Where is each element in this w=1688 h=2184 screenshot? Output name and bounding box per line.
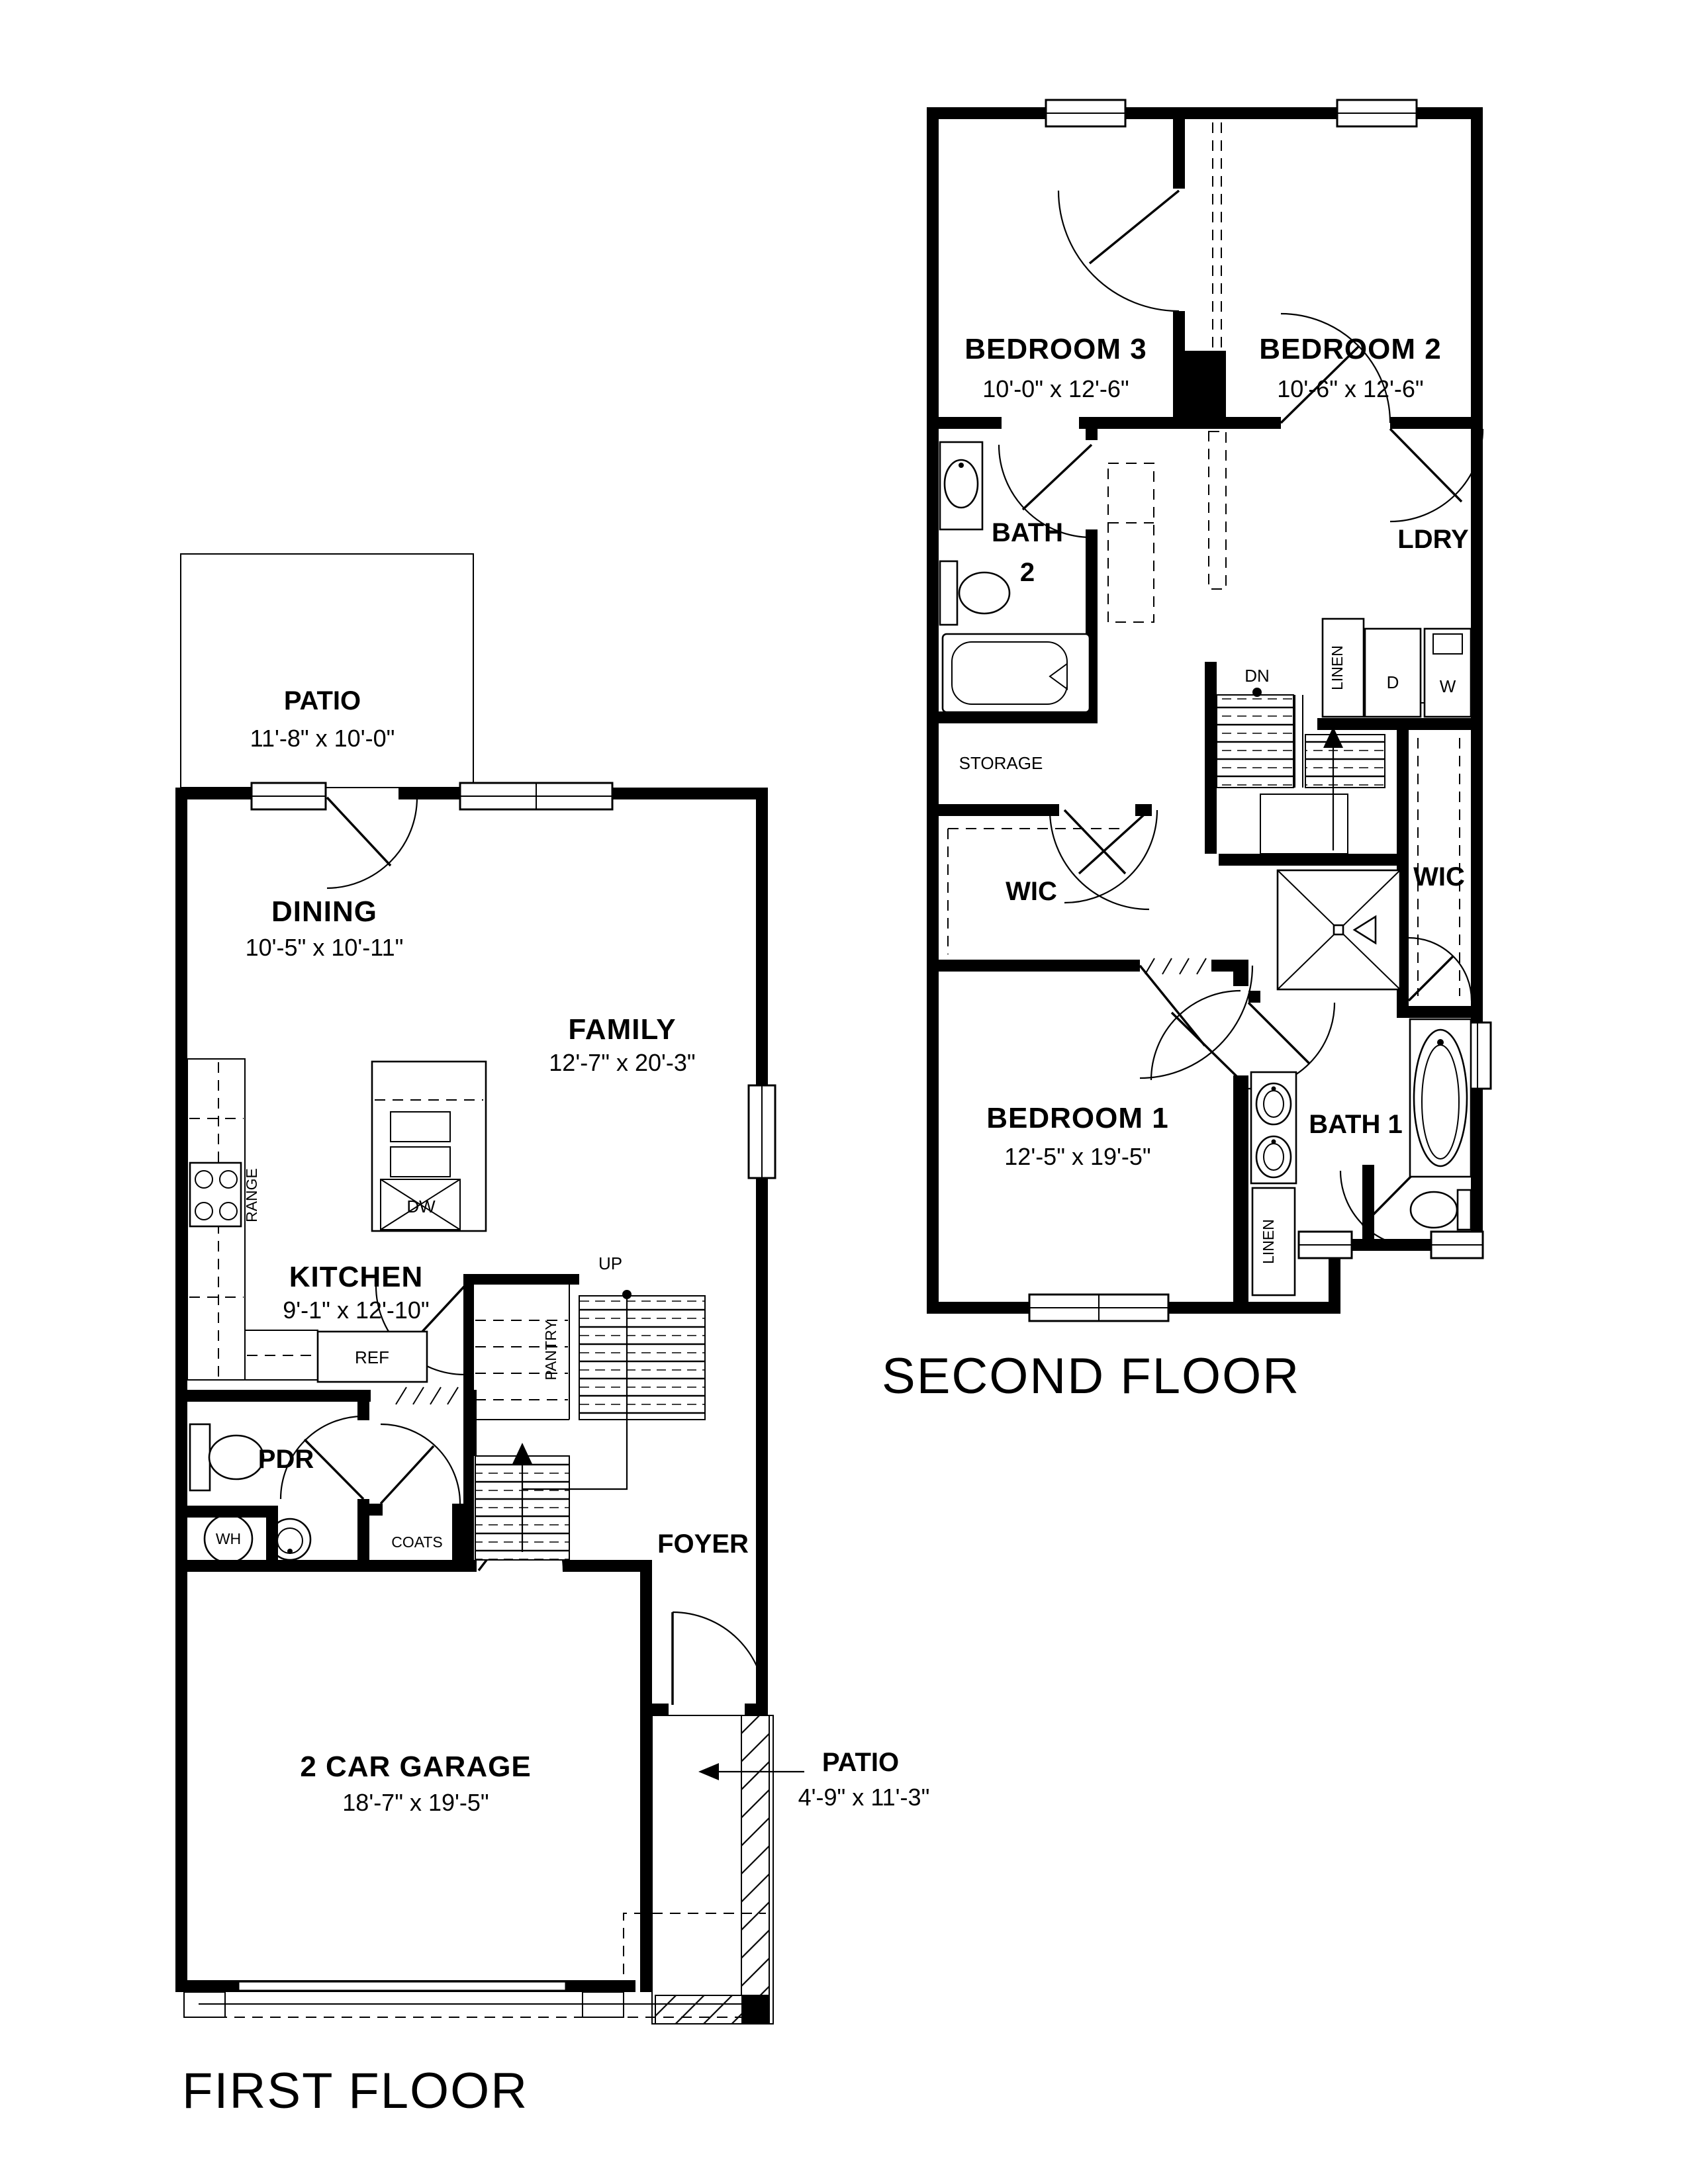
bath2-tub (943, 634, 1090, 712)
stairs-dn-label: DN (1244, 666, 1270, 686)
garage-label: 2 CAR GARAGE (300, 1751, 531, 1783)
family-label: FAMILY (568, 1013, 676, 1046)
dining-label: DINING (271, 895, 377, 928)
foyer-label: FOYER (657, 1529, 749, 1559)
laundry-label: LDRY (1397, 525, 1469, 554)
door-front-entry (673, 1612, 765, 1705)
up-label: UP (598, 1253, 622, 1273)
floor-plan-page: BEDROOM 3 10'-0" x 12'-6" BEDROOM 2 10'-… (0, 0, 1688, 2184)
front-patio-dims: 4'-9" x 11'-3" (798, 1784, 930, 1811)
rear-patio (181, 554, 473, 788)
wic-right-label: WIC (1413, 862, 1465, 891)
bedroom1-label: BEDROOM 1 (986, 1102, 1168, 1134)
bath2-label-line1: BATH (992, 518, 1063, 547)
bedroom2-dims: 10'-6" x 12'-6" (1277, 375, 1423, 402)
pdr-toilet (190, 1424, 263, 1490)
door-coats (381, 1424, 460, 1504)
wic-left-label: WIC (1006, 877, 1057, 906)
window-bath1-right (1431, 1232, 1483, 1258)
family-dims: 12'-7" x 20'-3" (549, 1049, 695, 1076)
door-laundry (1390, 429, 1483, 522)
door-storage (1050, 810, 1149, 909)
garage-dims: 18'-7" x 19'-5" (342, 1789, 489, 1816)
bath1-tub (1410, 1019, 1471, 1177)
door-bedroom3 (1058, 191, 1179, 311)
door-bedroom2 (1281, 314, 1390, 423)
bedroom3-label: BEDROOM 3 (964, 333, 1147, 365)
stairs-dn-dot (1252, 688, 1262, 697)
stairs-up-dot (622, 1290, 632, 1299)
window-dining (252, 783, 326, 809)
door-bedroom1-bath (1151, 991, 1241, 1080)
pdr-label: PDR (258, 1445, 314, 1474)
window-family-top (460, 783, 612, 809)
front-patio-label: PATIO (822, 1748, 899, 1777)
storage-label: STORAGE (959, 753, 1043, 773)
refrigerator-label: REF (355, 1347, 389, 1367)
second-floor-title: SECOND FLOOR (882, 1348, 1300, 1404)
bath2-label-line2: 2 (1020, 558, 1035, 587)
range (190, 1163, 241, 1226)
second-floor-plan: BEDROOM 3 10'-0" x 12'-6" BEDROOM 2 10'-… (882, 100, 1491, 1404)
washer-label: W (1440, 676, 1456, 696)
first-floor-windows (252, 783, 775, 1178)
first-floor-plan: PATIO 11'-8" x 10'-0" DINING 10'-5" x 10… (175, 554, 929, 2119)
coats-label: COATS (391, 1533, 443, 1551)
window-family-right (749, 1085, 775, 1178)
wh-label: WH (216, 1530, 241, 1547)
range-label: RANGE (243, 1168, 260, 1222)
kitchen-label: KITCHEN (289, 1261, 424, 1293)
washer-box (1425, 629, 1471, 717)
bedroom1-dims: 12'-5" x 19'-5" (1004, 1143, 1150, 1170)
window-bath1-left (1299, 1232, 1352, 1258)
window-bedroom2 (1337, 100, 1417, 126)
dryer-label: D (1387, 672, 1399, 692)
dining-dims: 10'-5" x 10'-11" (246, 934, 404, 961)
bedroom2-label: BEDROOM 2 (1259, 333, 1441, 365)
door-patio-rear (327, 797, 417, 888)
bath1-label: BATH 1 (1309, 1110, 1402, 1139)
bath1-vanity (1251, 1072, 1296, 1183)
first-floor-stairs (475, 1285, 705, 1560)
patio-arrow (698, 1763, 719, 1780)
dishwasher-label: DW (406, 1197, 436, 1216)
pantry-label: PANTRY (542, 1320, 559, 1380)
bath2-toilet (940, 561, 1009, 625)
bath1-shower (1278, 870, 1400, 989)
front-patio (652, 1715, 804, 2024)
bedroom3-dims: 10'-0" x 12'-6" (982, 375, 1129, 402)
wall-opening-dashes (396, 1387, 458, 1404)
kitchen-dims: 9'-1" x 12'-10" (283, 1297, 429, 1324)
rear-patio-dims: 11'-8" x 10'-0" (250, 725, 395, 752)
floor-plan-drawing: BEDROOM 3 10'-0" x 12'-6" BEDROOM 2 10'-… (0, 0, 1688, 2184)
bath2-sink (940, 442, 982, 529)
bath1-linen-label: LINEN (1260, 1219, 1277, 1264)
laundry-linen-label: LINEN (1329, 645, 1346, 690)
window-bedroom1 (1029, 1295, 1168, 1321)
window-bedroom3 (1046, 100, 1125, 126)
first-floor-title: FIRST FLOOR (182, 2063, 528, 2119)
bath1-toilet (1411, 1190, 1471, 1230)
rear-patio-label: PATIO (284, 686, 361, 715)
door-wic-left (1064, 810, 1157, 903)
first-floor-up-arrow (512, 1443, 532, 1464)
